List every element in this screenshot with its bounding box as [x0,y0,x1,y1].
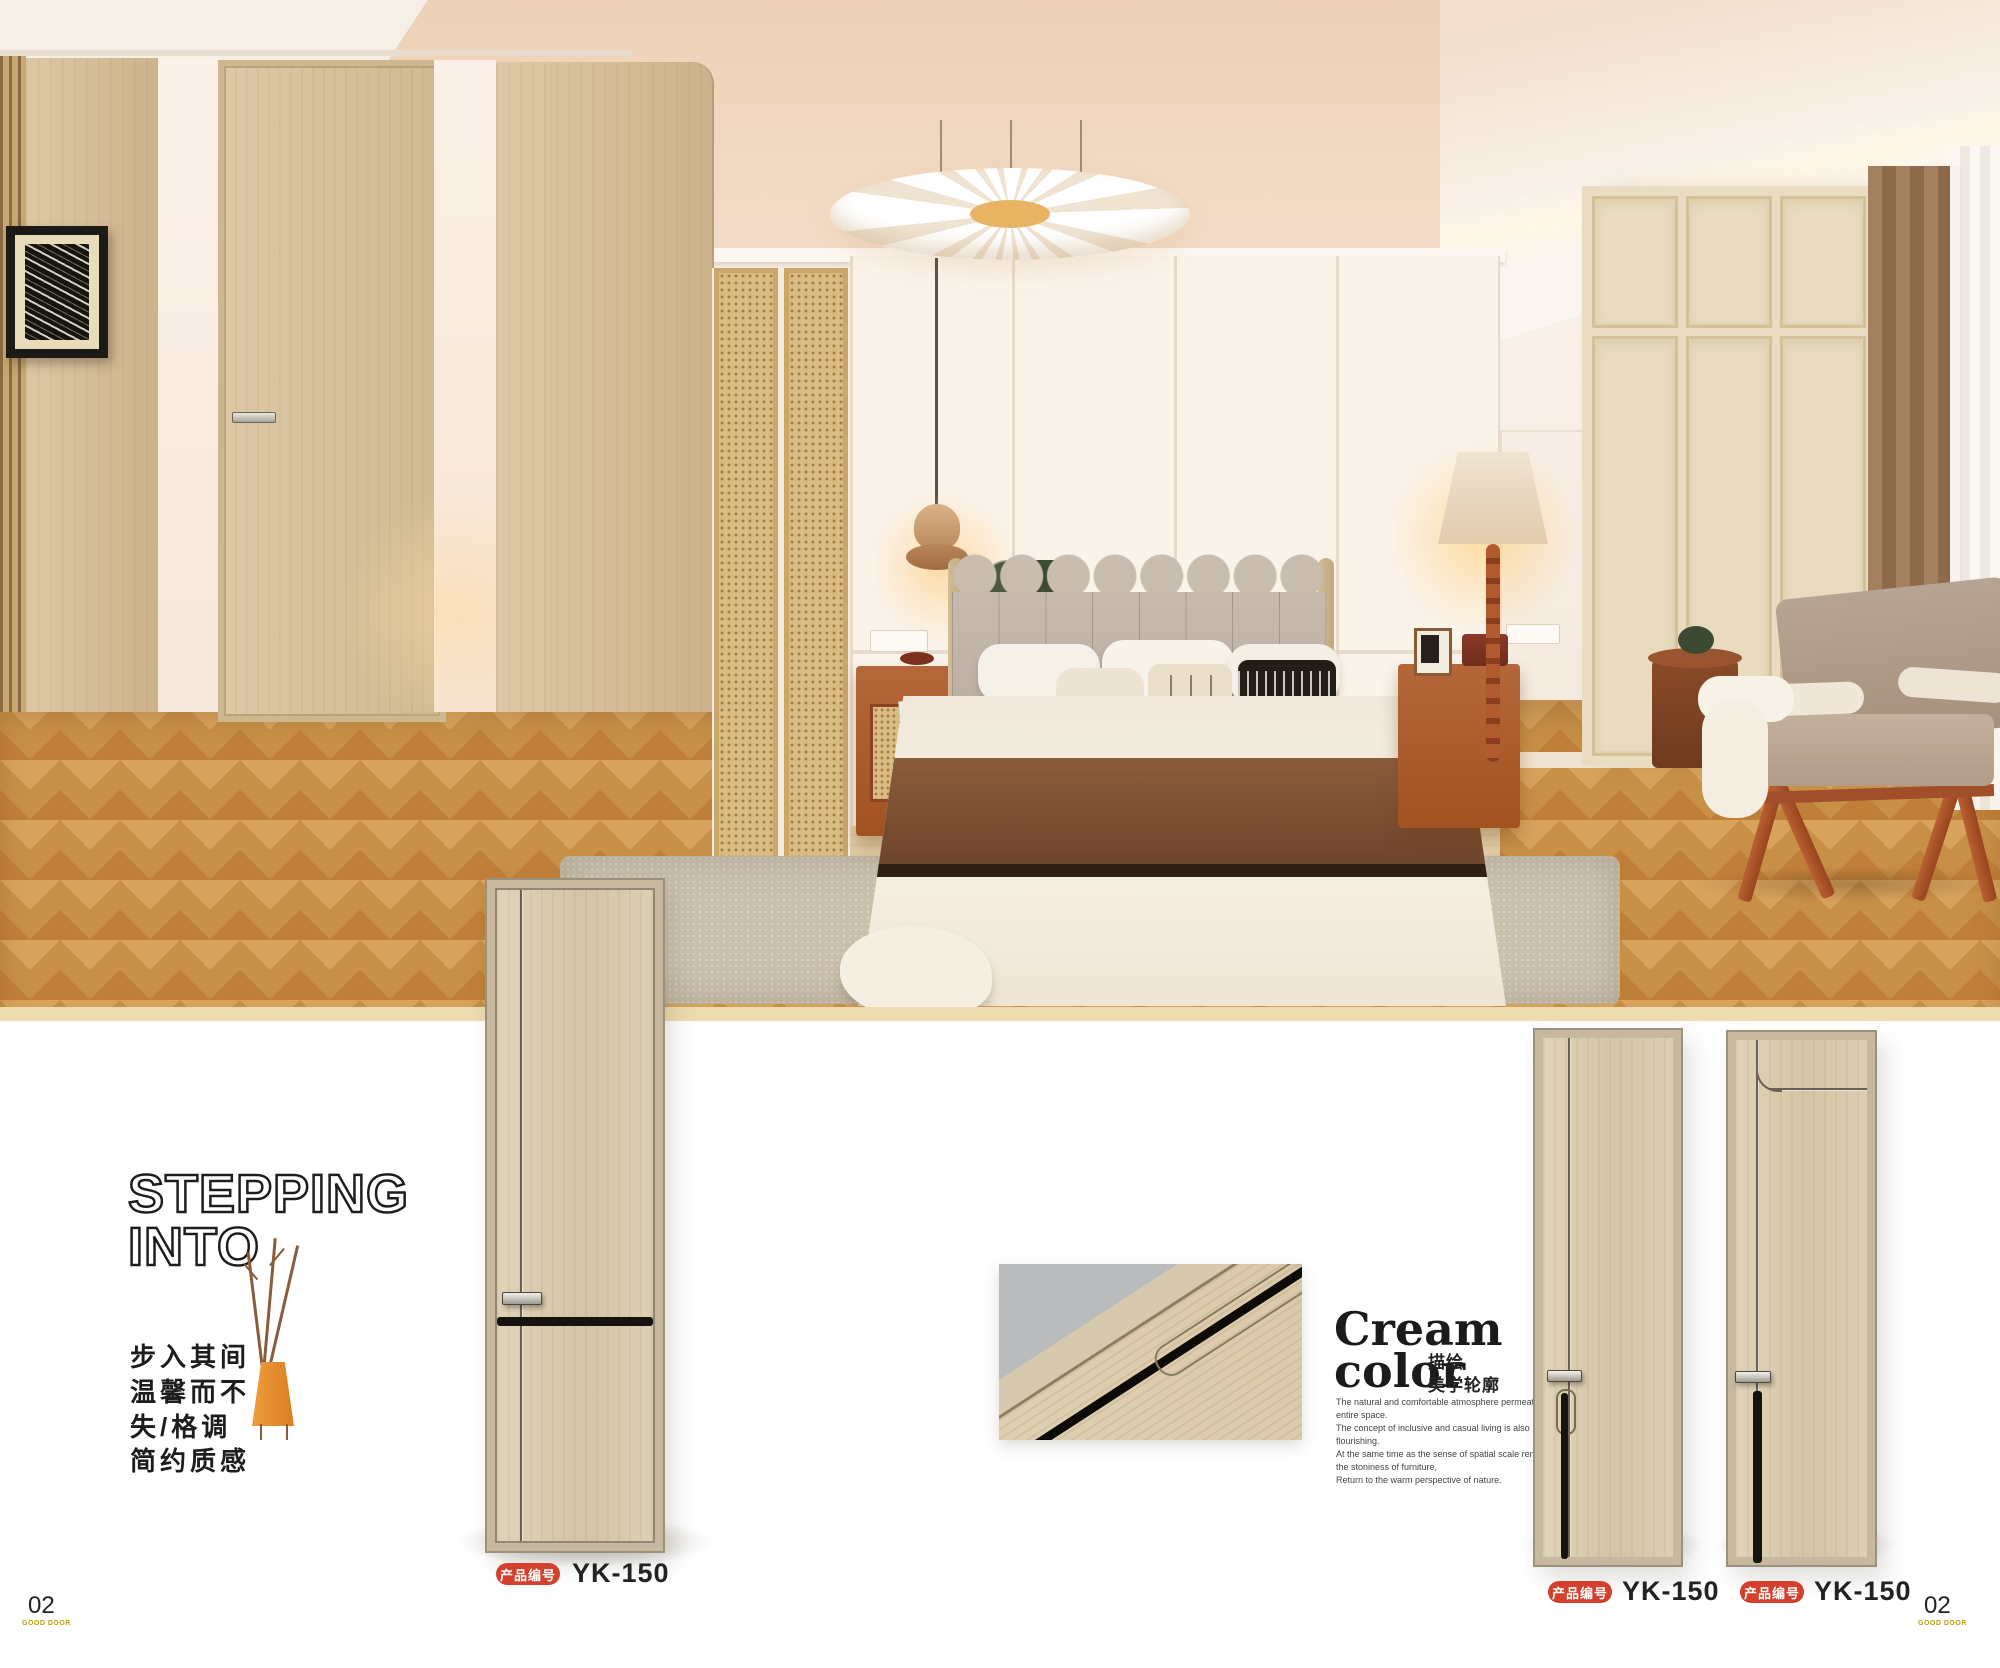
page-number-right: 02 [1924,1592,1951,1620]
nightstand [1398,664,1520,828]
tagline-line: 简约质感 [130,1444,390,1479]
potted-plant [1678,626,1714,654]
decor-radio [1462,634,1508,666]
wall-strip [158,58,218,712]
coat-rack-foot [286,1424,288,1440]
cream-body-text: The natural and comfortable atmosphere p… [1336,1396,1566,1487]
hall-ceiling-line [0,50,632,56]
door-handle [1735,1371,1771,1383]
cane-panel [784,268,848,940]
cane-sliding-doors [712,268,852,940]
pendant-wire [1080,120,1082,174]
door-groove [520,890,522,1541]
art-print [25,244,89,340]
product-code: YK-150 [1622,1576,1720,1607]
door-handle [232,412,276,423]
floor-lamp-pole [1486,544,1500,762]
product-code: YK-150 [1814,1576,1912,1607]
body-line: The natural and comfortable atmosphere p… [1336,1396,1566,1422]
bedside-pendant-cord [935,258,938,508]
wardrobe-door-panel [1592,196,1678,328]
pendant-wire [1010,120,1012,174]
page-caption-right: GOOD DOOR [1918,1620,1967,1627]
armchair-seat-cushion [1742,714,1994,786]
body-line: At the same time as the sense of spatial… [1336,1448,1566,1474]
catalog-page: STEPPING INTO 步入其间 温馨而不 失/格调 简约质感 产品编号 Y… [0,0,2000,1668]
pendant-wire [940,120,942,174]
door-detail-diagonal [999,1264,1302,1440]
photo [1421,635,1439,663]
blanket-edge [858,864,1506,877]
wood-wardrobe-corner [496,62,714,712]
bedroom-hero-photo [0,0,2000,1007]
page-caption-left: GOOD DOOR [22,1620,71,1627]
pendant-chandelier [830,120,1190,260]
section-title-line2: INTO [128,1221,488,1274]
door-black-inlay [497,1317,653,1326]
door-handle [1547,1370,1582,1382]
door-black-inlay [1753,1391,1762,1563]
product-code-badge: 产品编号 [1740,1581,1804,1603]
page-number-left: 02 [28,1592,55,1620]
cane-panel [714,268,778,940]
cream-subtitle-line: 描绘 [1428,1352,1548,1375]
photo-frame [1414,628,1452,676]
door-groove [1568,1038,1570,1557]
product-code-badge: 产品编号 [1548,1581,1612,1603]
coat-rack-foot [260,1424,262,1440]
wood-wall-panel [26,58,158,712]
product-code: YK-150 [572,1558,670,1589]
body-line: Return to the warm perspective of nature… [1336,1474,1566,1487]
door-groove [1768,1088,1867,1090]
armchair-throw-drape [1702,700,1768,818]
cream-subtitle-cn: 描绘 美学轮廓 [1428,1352,1548,1398]
section-title: STEPPING INTO [128,1168,488,1274]
decor-bowl [900,652,934,665]
body-line: The concept of inclusive and casual livi… [1336,1422,1566,1448]
art-mat [15,235,99,349]
photo-baseboard-strip [0,1007,2000,1021]
chair-shadow [1690,866,2000,902]
door-detail-photo [999,1264,1302,1440]
product-code-badge: 产品编号 [496,1563,560,1585]
framed-artwork [6,226,108,358]
section-title-line1: STEPPING [128,1168,488,1221]
pendant-center [970,200,1050,228]
wardrobe-door-panel [1780,196,1866,328]
door-black-inlay [1561,1393,1568,1559]
cream-subtitle-line: 美学轮廓 [1428,1375,1548,1398]
wood-slat-panel [0,56,26,712]
wardrobe-door-panel [1686,196,1772,328]
door-handle [502,1292,542,1305]
